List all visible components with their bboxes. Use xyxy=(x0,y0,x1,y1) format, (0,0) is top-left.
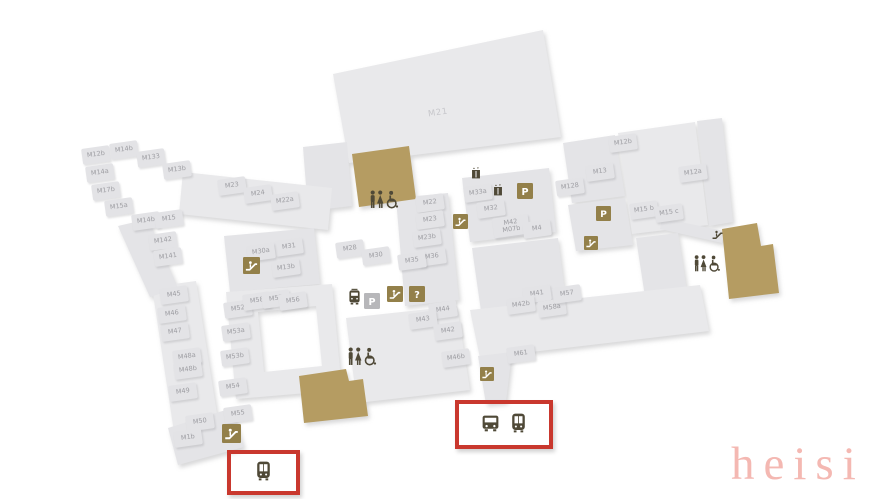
map-shape xyxy=(224,228,320,292)
escalator-icon xyxy=(243,257,260,274)
mall-floor-map: M12bM14bM133M13bM14aM17bM15aM14bM15M142M… xyxy=(0,0,885,499)
elevator-icon xyxy=(492,184,504,196)
restroom-icon xyxy=(346,346,378,367)
escalator-icon xyxy=(480,367,494,381)
restroom-icon xyxy=(368,189,400,210)
parking-gray-icon: P xyxy=(364,293,380,309)
svg-text:?: ? xyxy=(414,290,420,301)
escalator-icon xyxy=(453,214,468,229)
highlight-box-2 xyxy=(227,450,300,495)
accent-building-right xyxy=(722,223,779,299)
train-icon xyxy=(253,460,274,485)
tram-icon xyxy=(346,288,363,305)
map-shape-large-hall xyxy=(333,30,561,163)
train-icon xyxy=(508,412,529,437)
restroom-icon xyxy=(692,254,722,273)
escalator-icon xyxy=(387,286,403,302)
svg-text:P: P xyxy=(521,187,528,198)
parking-icon: P xyxy=(517,183,533,199)
svg-text:P: P xyxy=(368,297,375,308)
escalator-dark-icon xyxy=(710,227,725,242)
svg-text:P: P xyxy=(600,210,607,220)
parking-icon: P xyxy=(596,206,611,221)
escalator-icon xyxy=(222,424,241,443)
elevator-icon xyxy=(470,167,482,179)
escalator-icon xyxy=(584,236,598,250)
highlight-box-1 xyxy=(455,400,553,449)
watermark-text: heisi xyxy=(731,441,865,488)
info-icon: ? xyxy=(409,286,425,302)
bus-icon xyxy=(480,412,501,437)
